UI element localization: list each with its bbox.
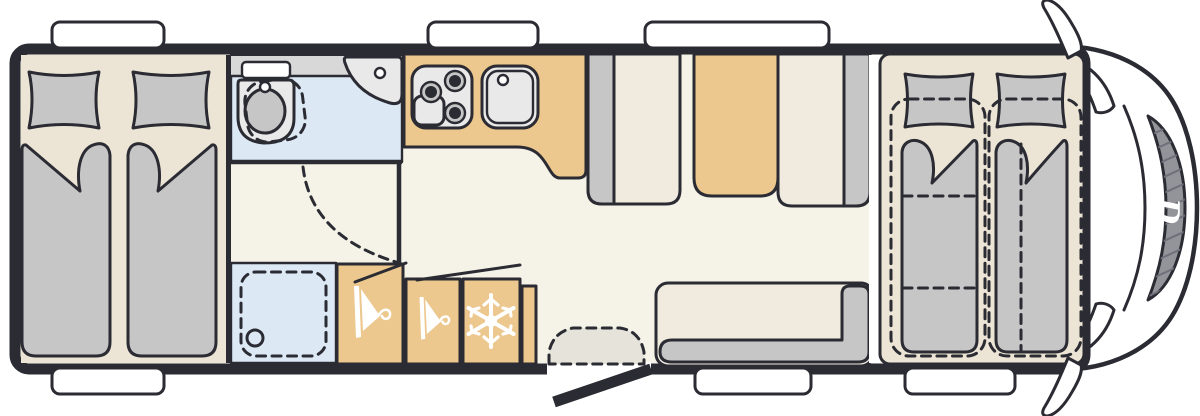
dinette-table — [694, 54, 778, 196]
partition-gap — [869, 55, 880, 363]
sink-faucet — [498, 75, 508, 85]
floorplan-image: D — [0, 0, 1200, 416]
toilet-bowl — [245, 89, 285, 133]
shower — [231, 263, 336, 363]
entry — [547, 328, 651, 402]
floorplan-canvas: D — [0, 0, 1200, 416]
basin-faucet — [375, 68, 385, 78]
window-bottom-front — [905, 368, 1015, 394]
toilet-flush-button — [260, 82, 270, 92]
bed-pillow-left — [29, 72, 99, 128]
rear-bedroom — [21, 55, 231, 363]
dinette-backrest-right — [844, 54, 870, 206]
toilet-cistern — [242, 62, 290, 78]
bed-pillow-right — [133, 72, 209, 128]
dinette — [588, 54, 870, 206]
window-bottom-bench — [695, 368, 811, 394]
counter-end-strip — [522, 286, 536, 364]
side-bench — [656, 283, 873, 366]
cabinet-row — [337, 263, 536, 364]
window-top-kitchen — [428, 22, 538, 48]
entry-step — [549, 328, 644, 364]
window-top-rear — [52, 22, 164, 48]
shower-floor — [231, 263, 336, 363]
washroom — [231, 55, 402, 162]
dinette-backrest-left — [588, 54, 614, 204]
window-top-dinette — [645, 22, 829, 48]
window-bottom-rear — [52, 368, 164, 394]
brand-logo-d: D — [1150, 197, 1185, 224]
front-sleeping-area — [880, 54, 1084, 364]
